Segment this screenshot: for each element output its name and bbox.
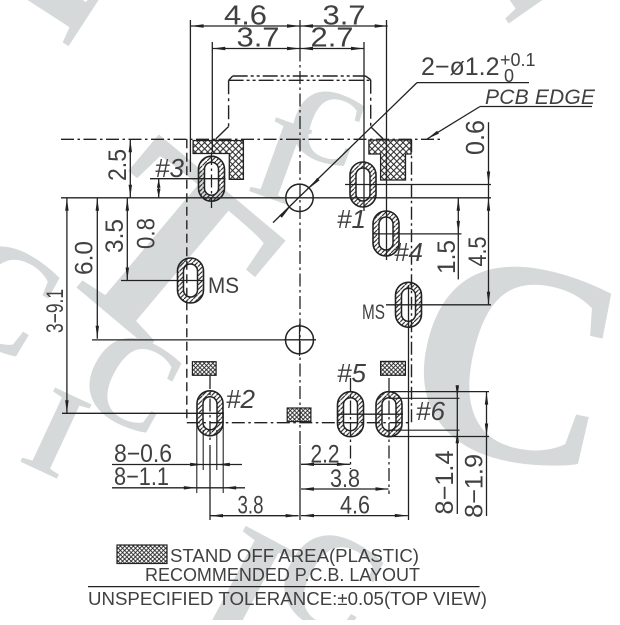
svg-text:3−9.1: 3−9.1 [42, 289, 69, 333]
svg-text:3.8: 3.8 [330, 465, 360, 493]
svg-text:8−1.1: 8−1.1 [114, 463, 169, 491]
svg-text:MS: MS [208, 273, 239, 298]
svg-text:3.7: 3.7 [237, 22, 280, 53]
svg-text:#4: #4 [394, 237, 423, 267]
svg-text:RECOMMENDED P.C.B. LAYOUT: RECOMMENDED P.C.B. LAYOUT [145, 564, 420, 585]
svg-text:UNSPECIFIED TOLERANCE:±0.05(TO: UNSPECIFIED TOLERANCE:±0.05(TOP VIEW) [88, 588, 487, 609]
svg-text:2.5: 2.5 [104, 149, 132, 181]
svg-text:PCB EDGE: PCB EDGE [485, 86, 596, 109]
svg-text:#5: #5 [337, 358, 366, 388]
svg-text:#6: #6 [416, 396, 445, 426]
svg-text:4.6: 4.6 [340, 492, 370, 520]
svg-text:#1: #1 [337, 204, 366, 234]
svg-text:2−ø1.2: 2−ø1.2 [421, 53, 500, 81]
svg-text:8−1.4: 8−1.4 [431, 450, 459, 514]
svg-text:2.7: 2.7 [311, 22, 354, 53]
svg-text:0.8: 0.8 [133, 218, 161, 249]
svg-text:1.5: 1.5 [433, 240, 461, 274]
svg-text:4.5: 4.5 [464, 237, 492, 267]
svg-text:0.6: 0.6 [460, 120, 490, 155]
svg-text:#2: #2 [226, 384, 255, 414]
svg-text:3.5: 3.5 [101, 219, 129, 253]
svg-text:STAND OFF AREA(PLASTIC): STAND OFF AREA(PLASTIC) [170, 545, 419, 566]
svg-text:8−1.9: 8−1.9 [461, 454, 489, 518]
svg-text:6.0: 6.0 [71, 241, 99, 275]
svg-text:3.8: 3.8 [238, 492, 264, 520]
svg-text:#3: #3 [155, 153, 184, 183]
svg-text:MS: MS [362, 301, 385, 324]
